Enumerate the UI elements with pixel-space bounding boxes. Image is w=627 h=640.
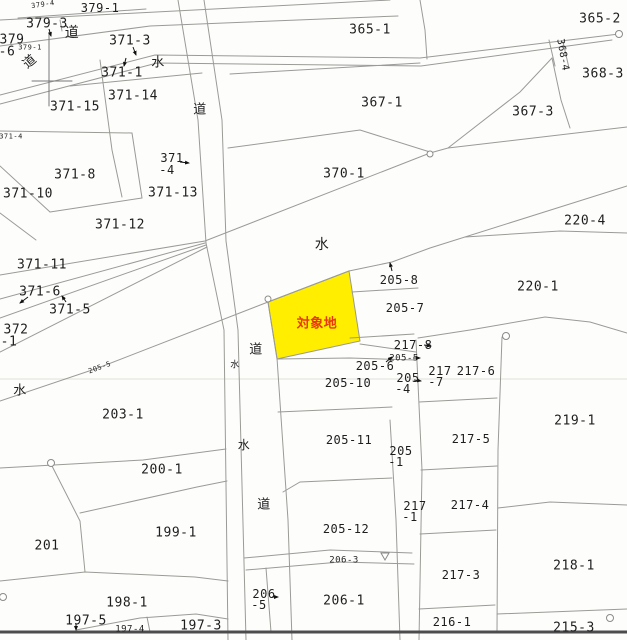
parcel-label-365-2: 365-2 [579, 13, 621, 26]
parcel-label-371-10: 371-10 [3, 188, 53, 201]
parcel-label-370-1: 370-1 [323, 168, 365, 181]
parcel-label-206-3: 206-3 [329, 557, 359, 566]
parcel-label-365-1: 365-1 [349, 24, 391, 37]
parcel-label--1: -1 [388, 456, 403, 468]
parcel-label-220-1: 220-1 [517, 281, 559, 294]
survey-marker [265, 296, 271, 302]
survey-marker [48, 460, 55, 467]
road-label: 道 [257, 499, 271, 512]
parcel-label-218-1: 218-1 [553, 560, 595, 573]
parcel-label-371-5: 371-5 [49, 304, 91, 317]
parcel-label--1: -1 [402, 511, 417, 523]
parcel-label-197-4: 197-4 [115, 626, 145, 635]
parcel-label-371-13: 371-13 [148, 187, 198, 200]
parcel-label-217-3: 217-3 [442, 569, 481, 581]
parcel-label-199-1: 199-1 [155, 527, 197, 540]
road-label: 道 [65, 26, 80, 40]
water-label: 水 [151, 57, 165, 70]
survey-marker [0, 594, 7, 601]
road-label: 道 [193, 104, 207, 117]
parcel-label--7: -7 [428, 376, 443, 388]
survey-marker [607, 615, 614, 622]
parcel-label-367-3: 367-3 [512, 106, 554, 119]
cadastral-map: 379-4379-1379-3道379-6379-1道371-3水371-137… [0, 0, 627, 640]
road-label: 道 [249, 344, 263, 357]
parcel-label-371-6: 371-6 [19, 286, 61, 299]
parcel-label--6: -6 [0, 46, 15, 59]
parcel-label-371-12: 371-12 [95, 219, 145, 232]
parcel-label-367-1: 367-1 [361, 97, 403, 110]
parcel-label-379-1: 379-1 [81, 2, 120, 14]
parcel-label-203-1: 203-1 [102, 409, 144, 422]
parcel-label--1: -1 [1, 336, 18, 349]
parcel-label-205-8: 205-8 [380, 274, 419, 286]
parcel-label-371-3: 371-3 [109, 35, 151, 48]
parcel-label-371-1: 371-1 [101, 67, 143, 80]
water-label: 水 [238, 439, 251, 451]
parcel-label-215-3: 215-3 [553, 622, 595, 635]
parcel-label-198-1: 198-1 [106, 597, 148, 610]
parcel-label-217-8: 217-8 [394, 339, 433, 351]
parcel-label-371-8: 371-8 [54, 169, 96, 182]
parcel-label-217-6: 217-6 [457, 365, 496, 377]
water-label: 水 [230, 362, 240, 371]
parcel-label--4: -4 [159, 164, 174, 176]
parcel-label-371-4: 371-4 [0, 134, 23, 141]
parcel-label-371-15: 371-15 [50, 101, 100, 114]
survey-marker [503, 333, 510, 340]
parcel-label--4: -4 [395, 383, 410, 395]
parcel-label-368-3: 368-3 [582, 68, 624, 81]
parcel-label-371-14: 371-14 [108, 90, 158, 103]
parcel-label-379-3: 379-3 [26, 18, 68, 31]
subject-site-label: 対象地 [297, 318, 338, 331]
parcel-label-217-5: 217-5 [452, 433, 491, 445]
survey-marker [616, 31, 623, 38]
parcel-label-379-1: 379-1 [18, 45, 42, 52]
parcel-label-217-4: 217-4 [451, 499, 490, 511]
parcel-label-205-7: 205-7 [386, 302, 425, 314]
parcel-label--5: -5 [251, 599, 266, 611]
parcel-label-205-12: 205-12 [323, 523, 369, 535]
parcel-label-205-10: 205-10 [325, 377, 371, 389]
parcel-label-197-5: 197-5 [65, 615, 107, 628]
parcel-label-371-11: 371-11 [17, 259, 67, 272]
survey-marker [427, 151, 433, 157]
parcel-label-205-11: 205-11 [326, 434, 372, 446]
water-label: 水 [13, 385, 27, 398]
parcel-label-201: 201 [35, 540, 60, 553]
parcel-label-216-1: 216-1 [433, 616, 472, 628]
triangle-marker [381, 553, 389, 560]
parcel-label-219-1: 219-1 [554, 415, 596, 428]
parcel-label-197-3: 197-3 [180, 620, 222, 633]
parcel-label-205-6: 205-6 [356, 360, 395, 372]
water-label: 水 [315, 238, 330, 252]
parcel-label-200-1: 200-1 [141, 464, 183, 477]
parcel-label-206-1: 206-1 [323, 595, 365, 608]
parcel-label-220-4: 220-4 [564, 215, 606, 228]
